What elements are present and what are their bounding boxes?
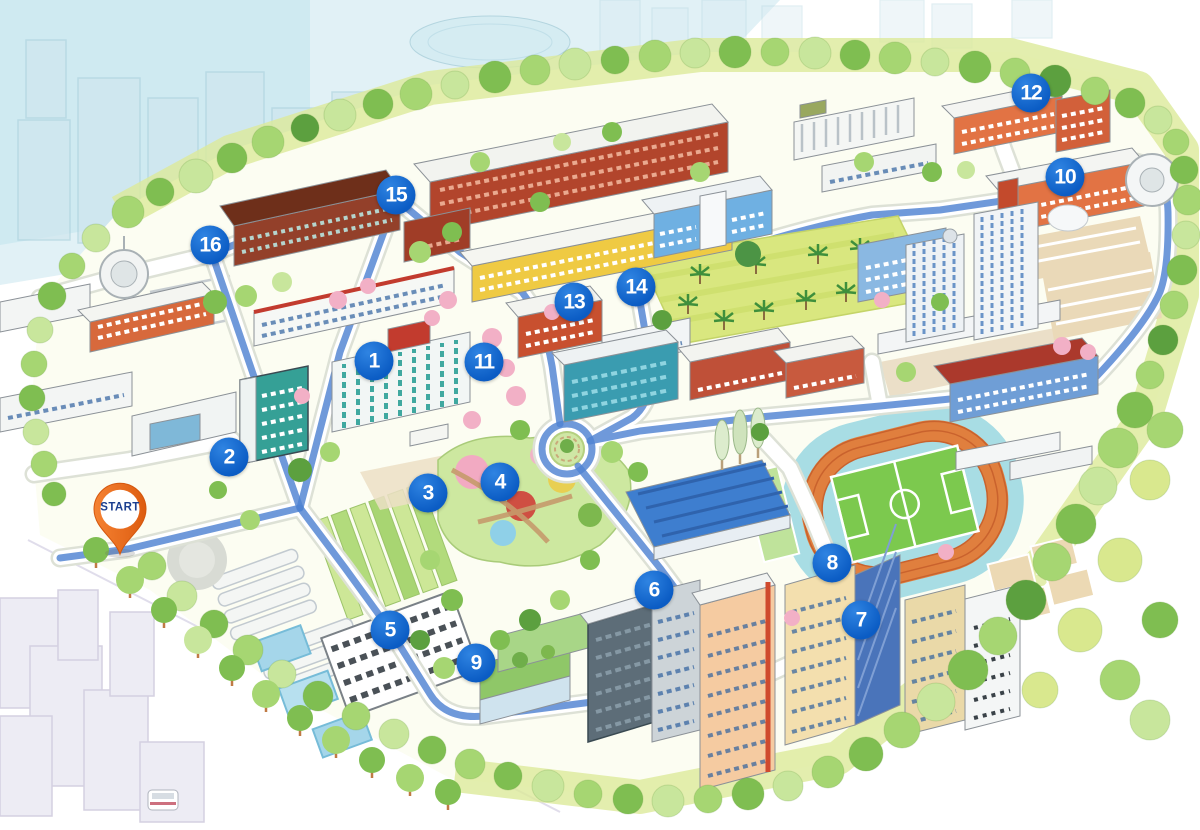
start-pin-label: START	[88, 501, 152, 513]
start-pin[interactable]: START	[88, 482, 152, 558]
map-marker-3[interactable]: 3	[409, 474, 448, 513]
map-marker-13[interactable]: 13	[555, 283, 594, 322]
map-artwork	[0, 0, 1200, 830]
map-marker-11[interactable]: 11	[465, 343, 504, 382]
map-marker-5[interactable]: 5	[371, 611, 410, 650]
map-marker-6[interactable]: 6	[635, 571, 674, 610]
map-marker-15[interactable]: 15	[377, 176, 416, 215]
map-marker-16[interactable]: 16	[191, 226, 230, 265]
map-marker-2[interactable]: 2	[210, 438, 249, 477]
map-marker-9[interactable]: 9	[457, 644, 496, 683]
map-marker-8[interactable]: 8	[813, 544, 852, 583]
map-marker-14[interactable]: 14	[617, 268, 656, 307]
map-marker-12[interactable]: 12	[1012, 74, 1051, 113]
map-marker-1[interactable]: 1	[355, 342, 394, 381]
car	[148, 790, 178, 810]
map-pin-icon	[88, 482, 152, 558]
map-marker-4[interactable]: 4	[481, 463, 520, 502]
map-marker-7[interactable]: 7	[842, 601, 881, 640]
campus-map: 12345678910111213141516 START	[0, 0, 1200, 830]
map-marker-10[interactable]: 10	[1046, 158, 1085, 197]
roundabout	[550, 432, 584, 466]
